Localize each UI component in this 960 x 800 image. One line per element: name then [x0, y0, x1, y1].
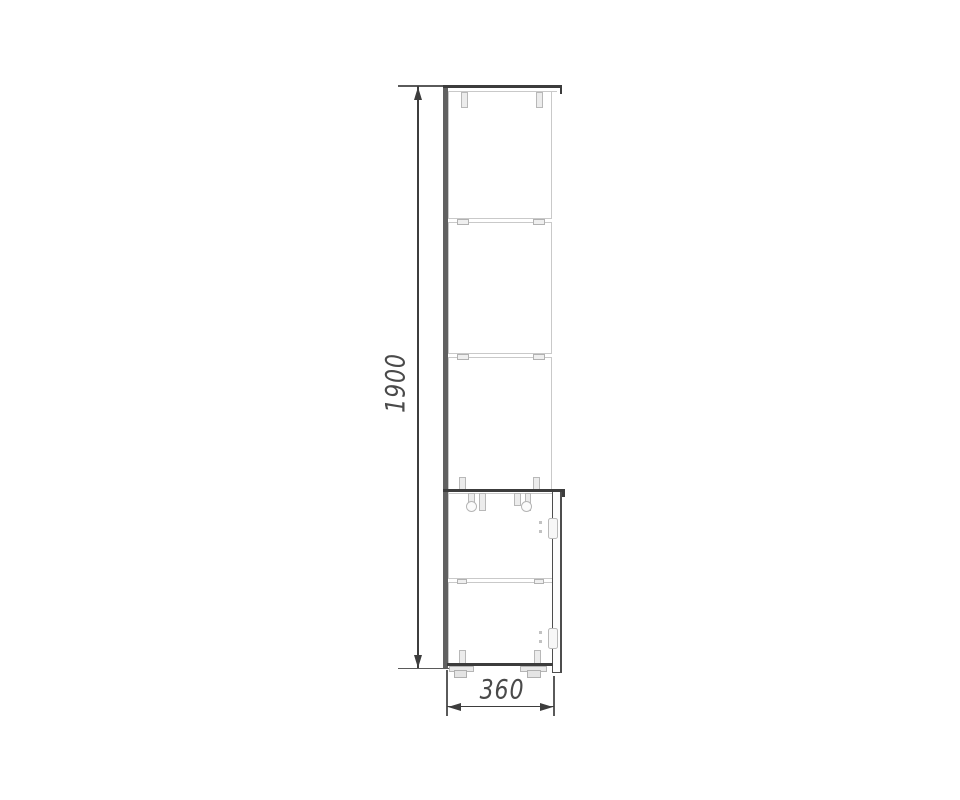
arrow-right-icon [540, 703, 553, 711]
cam-lock [466, 501, 477, 512]
dowel [479, 493, 486, 511]
foot-left-glide [454, 670, 467, 678]
width-dimension-line [447, 706, 554, 707]
bottom-panel [447, 663, 553, 666]
middle-panel-underside [449, 493, 552, 494]
shelf-connector [457, 354, 469, 360]
drawing-canvas: 1900 360 [0, 0, 960, 800]
foot-right-glide [527, 670, 541, 678]
shelf-connector [533, 354, 545, 360]
width-dimension-label: 360 [480, 675, 525, 706]
arrow-up-icon [414, 87, 422, 100]
shelf-connector [457, 219, 469, 225]
arrow-left-icon [448, 703, 461, 711]
shelf-connector [534, 579, 544, 585]
shelf-connector [457, 579, 467, 585]
top-panel-front-hook [560, 85, 563, 94]
arrow-down-icon [414, 655, 422, 668]
hinge-screw [539, 640, 542, 643]
hinge-screw [539, 530, 542, 533]
dowel [536, 92, 543, 108]
top-panel [443, 85, 562, 88]
dowel [461, 92, 468, 108]
hinge-bottom [548, 628, 558, 649]
height-dimension-line [417, 86, 418, 668]
hinge-screw [539, 631, 542, 634]
dowel [514, 493, 521, 506]
extension-line-right [553, 676, 554, 716]
hinge-screw [539, 521, 542, 524]
hinge-top [548, 518, 558, 539]
middle-panel-front-hook [562, 489, 566, 497]
shelf-connector [533, 219, 545, 225]
middle-panel [443, 489, 565, 492]
cam-lock [521, 501, 532, 512]
front-edge-upper [551, 92, 552, 490]
height-dimension-label: 1900 [381, 353, 412, 413]
